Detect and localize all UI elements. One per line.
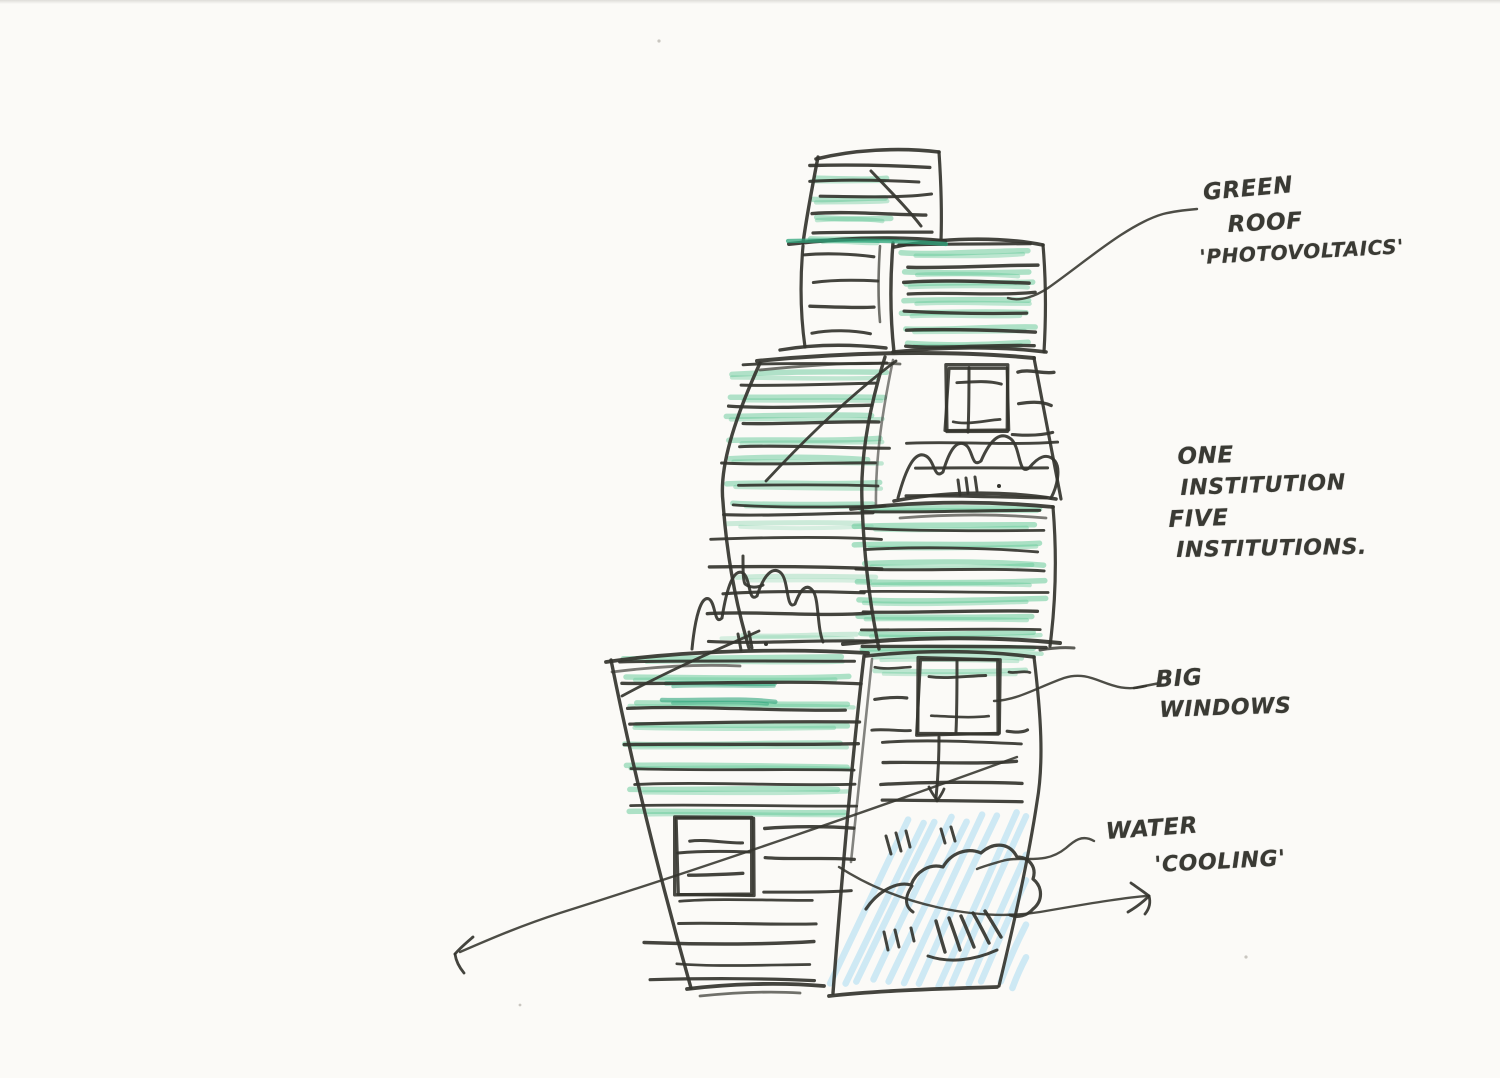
note-institutions-line: FIVE — [1168, 505, 1229, 533]
note-institutions-line: ONE — [1177, 442, 1234, 470]
paper-sheet: GREEN ROOF 'PHOTOVOLTAICS' ONE INSTITUTI… — [0, 0, 1500, 1078]
detail-strokes-and-leaders — [455, 171, 1197, 996]
note-big-windows-line: WINDOWS — [1159, 693, 1292, 723]
note-green-roof-line: ROOF — [1227, 208, 1303, 238]
note-big-windows-line: BIG — [1155, 665, 1203, 693]
blue-water-shading — [830, 812, 1026, 988]
note-institutions-line: INSTITUTIONS. — [1176, 535, 1367, 563]
